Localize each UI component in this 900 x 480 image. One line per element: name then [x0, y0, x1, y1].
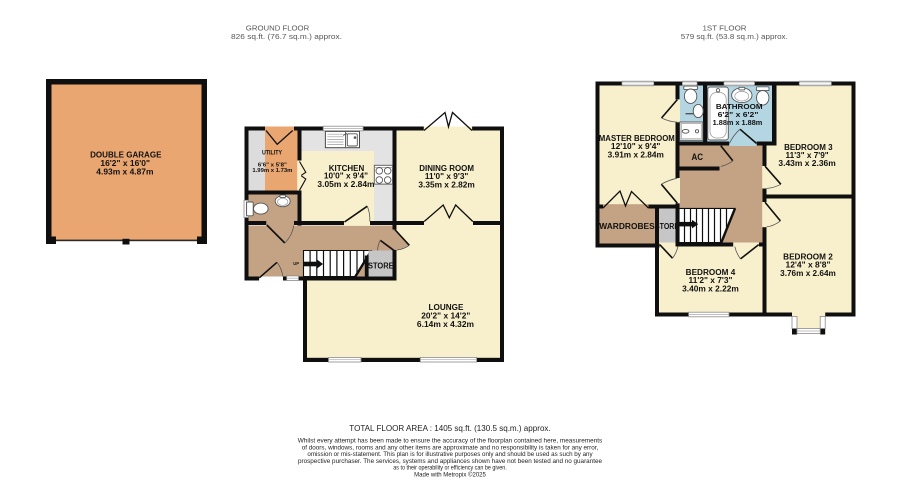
svg-text:STORE: STORE — [655, 222, 679, 231]
svg-text:UP: UP — [293, 261, 299, 266]
svg-text:AC: AC — [692, 152, 704, 162]
svg-text:1.99m x 1.73m: 1.99m x 1.73m — [252, 168, 292, 174]
svg-text:of doors, windows, rooms and a: of doors, windows, rooms and any other i… — [302, 445, 599, 451]
svg-text:as to their operability or eff: as to their operability or efficiency ca… — [393, 466, 507, 472]
svg-text:Whilst every attempt has been: Whilst every attempt has been made to en… — [298, 439, 603, 445]
svg-text:3.91m x 2.84m: 3.91m x 2.84m — [608, 150, 664, 159]
svg-text:TOTAL FLOOR AREA : 1405 sq.ft.: TOTAL FLOOR AREA : 1405 sq.ft. (130.5 sq… — [349, 423, 550, 433]
svg-text:3.05m x 2.84m: 3.05m x 2.84m — [317, 180, 374, 189]
svg-text:3.43m x 2.36m: 3.43m x 2.36m — [778, 159, 835, 168]
svg-text:826 sq.ft. (76.7 sq.m.) approx: 826 sq.ft. (76.7 sq.m.) approx. — [231, 32, 342, 41]
svg-text:Made with Metropix ©2025: Made with Metropix ©2025 — [414, 472, 486, 479]
svg-text:UTILITY: UTILITY — [262, 150, 282, 157]
svg-text:6.14m x 4.32m: 6.14m x 4.32m — [417, 320, 474, 329]
svg-text:STORE: STORE — [368, 262, 394, 271]
svg-text:4.93m x 4.87m: 4.93m x 4.87m — [96, 168, 153, 177]
svg-text:3.76m x 2.64m: 3.76m x 2.64m — [780, 269, 836, 278]
svg-text:3.35m x 2.82m: 3.35m x 2.82m — [418, 181, 474, 190]
svg-text:579 sq.ft. (53.8 sq.m.) approx: 579 sq.ft. (53.8 sq.m.) approx. — [681, 32, 788, 41]
svg-text:1.88m x 1.88m: 1.88m x 1.88m — [713, 118, 763, 127]
svg-text:WARDROBES: WARDROBES — [599, 222, 654, 231]
svg-text:3.40m x 2.22m: 3.40m x 2.22m — [682, 285, 739, 294]
svg-text:prospective purchaser. The ser: prospective purchaser. The services, sys… — [298, 459, 603, 465]
svg-text:omission or mis-statement. Thi: omission or mis-statement. This plan is … — [307, 452, 592, 458]
